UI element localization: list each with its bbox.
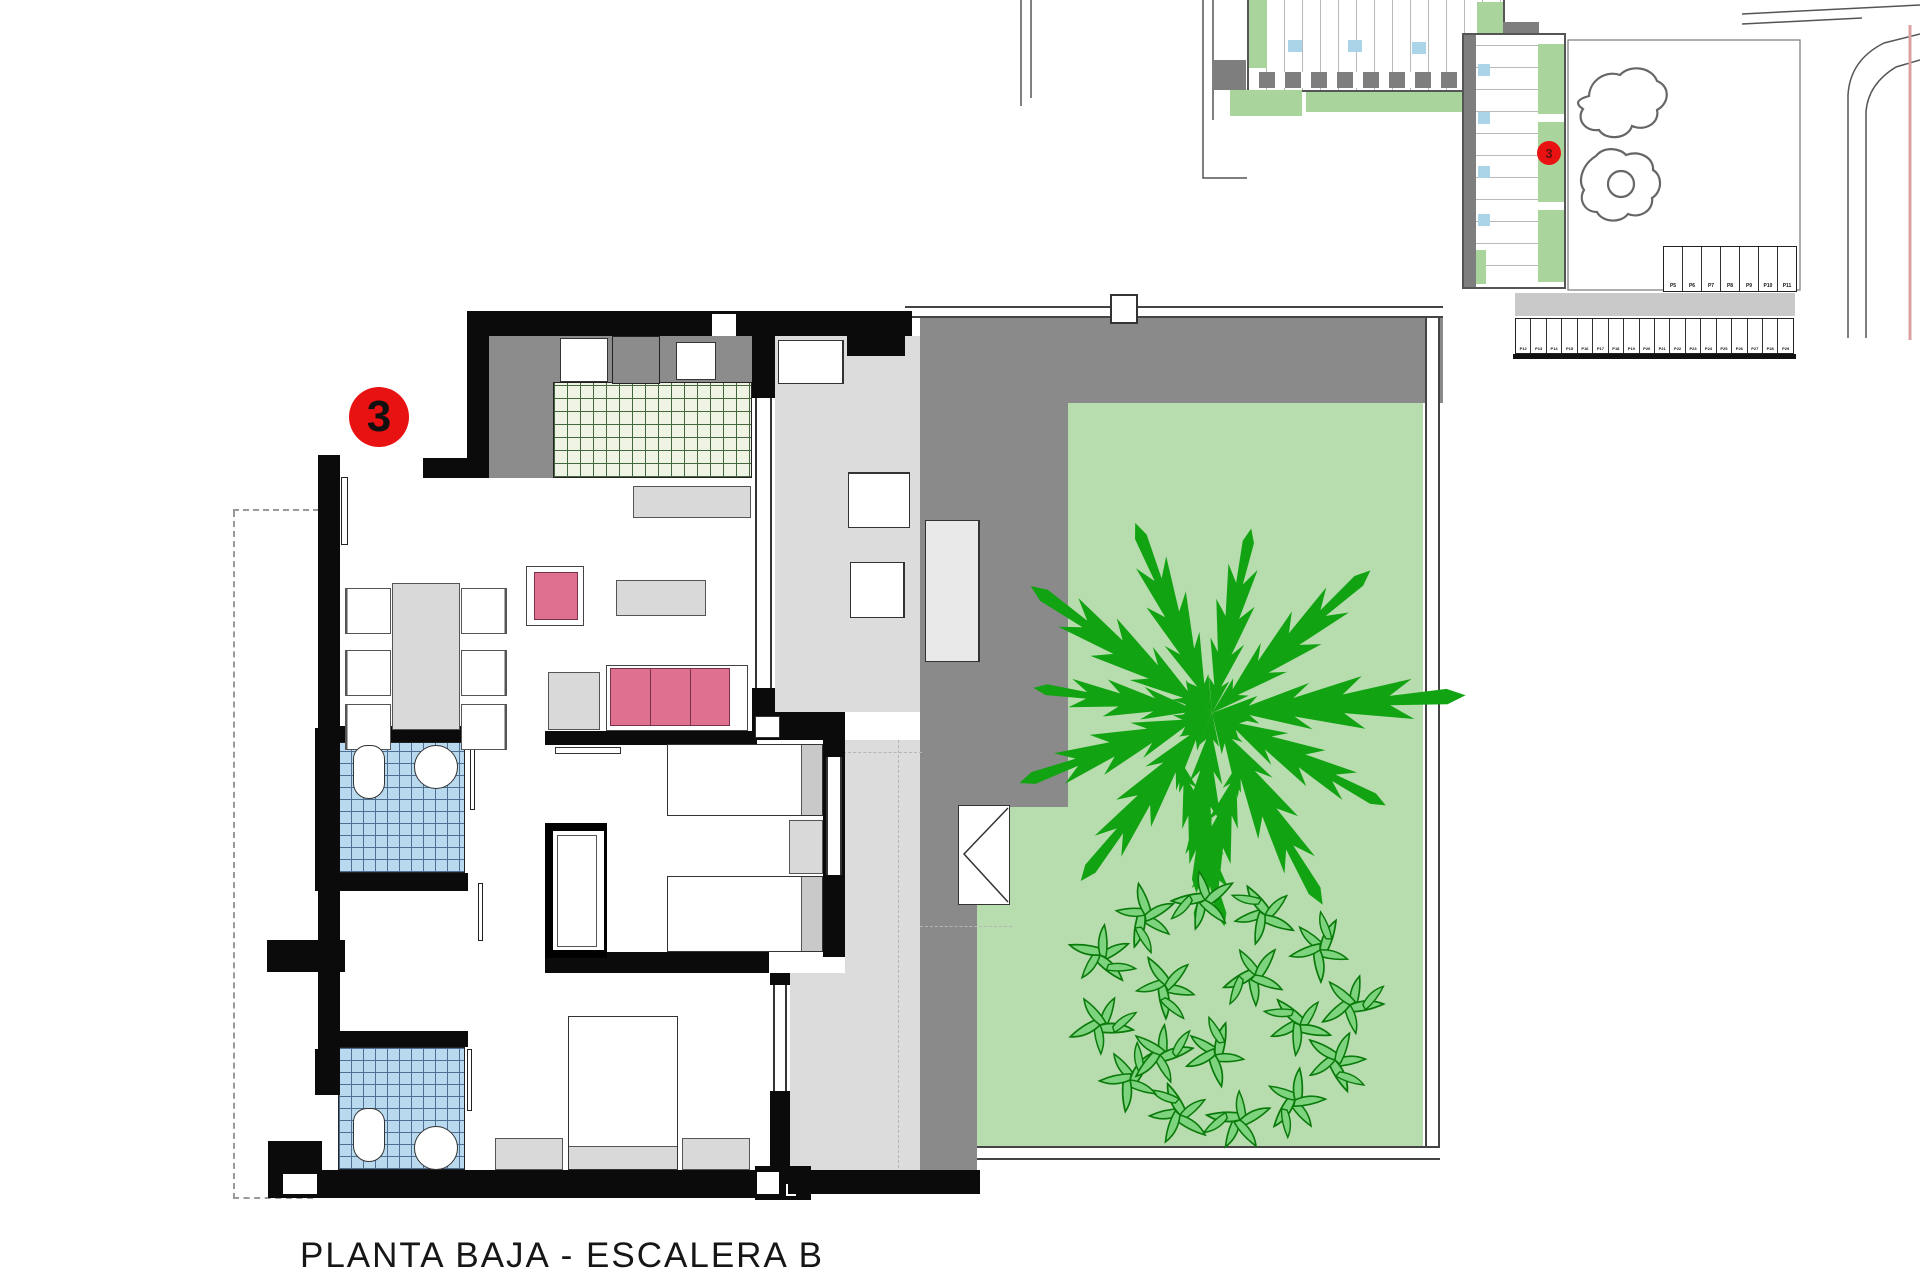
- bed: [568, 1016, 678, 1170]
- terrace-cabinet: [850, 562, 905, 618]
- site-road: [1515, 293, 1795, 316]
- kitchen-counter: [633, 486, 751, 518]
- terrace-cabinet: [778, 340, 844, 384]
- wall: [300, 1170, 765, 1198]
- dining-table: [392, 583, 460, 730]
- parking-stall-label: P7: [1702, 247, 1721, 291]
- wall: [770, 973, 790, 985]
- dining-chair: [461, 588, 507, 634]
- washbasin: [414, 1126, 458, 1170]
- wall: [338, 1031, 468, 1047]
- porch-unit: [612, 336, 660, 384]
- site-green: [1230, 90, 1302, 116]
- wall: [318, 972, 340, 1049]
- site-green: [1249, 0, 1267, 68]
- parking-row-lower: P12P13P14P15P16P17P18P19P20P21P22P23P24P…: [1515, 318, 1794, 354]
- parking-stall-label: P22: [1670, 319, 1685, 353]
- parking-stall-label: P13: [1531, 319, 1546, 353]
- nightstand: [495, 1138, 563, 1170]
- wall: [338, 873, 468, 891]
- plot-boundary-dashed: [233, 511, 235, 1199]
- bed: [667, 876, 823, 952]
- site-pool-dot: [1348, 40, 1362, 52]
- fence-right: [1425, 318, 1440, 1160]
- parking-stall-label: P11: [1778, 247, 1796, 291]
- porch-cabinet: [560, 338, 608, 382]
- parking-stall-label: P18: [1609, 319, 1624, 353]
- parking-stall-label: P25: [1717, 319, 1732, 353]
- nightstand: [789, 820, 823, 874]
- porch-cabinet: [676, 342, 716, 380]
- window: [826, 757, 842, 875]
- dining-chair: [345, 704, 391, 750]
- paving-band: [920, 318, 1443, 403]
- coffee-table: [616, 580, 706, 616]
- fence-bottom: [977, 1146, 1440, 1160]
- wall-notch: [712, 314, 736, 336]
- door-leaf: [467, 1049, 472, 1111]
- dining-chair: [461, 650, 507, 696]
- wall: [770, 1091, 790, 1170]
- toilet: [353, 745, 385, 799]
- washbasin: [414, 745, 458, 789]
- parking-stall-label: P14: [1547, 319, 1562, 353]
- fence-top: [905, 306, 1443, 318]
- parking-stall-label: P12: [1516, 319, 1531, 353]
- window: [773, 985, 787, 1091]
- wardrobe: [545, 823, 607, 958]
- wall-notch: [757, 1172, 779, 1194]
- parking-stall-label: P28: [1763, 319, 1778, 353]
- site-green: [1538, 210, 1564, 282]
- wall: [318, 891, 340, 942]
- parking-stall-label: P27: [1748, 319, 1763, 353]
- kitchen-floor-tiles: [553, 382, 752, 478]
- door-leaf: [478, 883, 483, 941]
- terrace: [790, 973, 920, 1170]
- site-roofline: [1464, 35, 1476, 287]
- garden-lawn: [1068, 403, 1423, 1150]
- wall: [847, 311, 905, 356]
- parking-stall-label: P17: [1593, 319, 1608, 353]
- wall: [545, 731, 757, 745]
- window: [755, 398, 772, 688]
- bedroom1-door: [755, 716, 780, 738]
- wall: [467, 311, 912, 336]
- site-pool-dot: [1478, 214, 1490, 226]
- site-pool-dot: [1412, 42, 1426, 54]
- wall: [752, 336, 775, 398]
- garden-gate-swing: [956, 804, 1016, 908]
- headboard: [801, 877, 822, 951]
- parking-stall-label: P19: [1624, 319, 1639, 353]
- wall: [318, 455, 340, 730]
- parking-stall-label: P9: [1740, 247, 1759, 291]
- site-green: [1306, 92, 1474, 112]
- site-unit-badge: 3: [1537, 141, 1561, 165]
- terrace-armchair: [848, 472, 910, 528]
- parking-stall-label: P24: [1701, 319, 1716, 353]
- nightstand: [682, 1138, 750, 1170]
- parking-stall-label: P26: [1732, 319, 1747, 353]
- wall-notch: [283, 1174, 317, 1194]
- terrace-bottom-wall: [788, 1170, 980, 1194]
- door-leaf: [341, 477, 348, 545]
- parking-stall-label: P21: [1655, 319, 1670, 353]
- parking-stall-label: P20: [1640, 319, 1655, 353]
- terrace: [845, 740, 920, 973]
- floorplan-sheet: 3 3: [0, 0, 1920, 1280]
- site-pool-dot: [1478, 64, 1490, 76]
- tv-shelf: [555, 747, 621, 754]
- terrace-guide-dashed: [898, 740, 899, 1168]
- dining-chair: [461, 704, 507, 750]
- site-pool-dot: [1478, 166, 1490, 178]
- parking-stall-label: P6: [1683, 247, 1702, 291]
- wall: [467, 311, 489, 478]
- plot-boundary-dashed: [233, 509, 319, 511]
- site-green: [1538, 44, 1564, 114]
- dining-chair: [345, 650, 391, 696]
- fence-post: [1110, 294, 1138, 324]
- wardrobe-interior: [557, 835, 597, 947]
- site-pool-dot: [1478, 112, 1490, 124]
- plan-title: PLANTA BAJA - ESCALERA B: [300, 1236, 824, 1276]
- wall: [315, 728, 340, 891]
- sofa-cushions: [610, 668, 730, 726]
- parking-stall-label: P15: [1562, 319, 1577, 353]
- wall: [315, 1049, 340, 1095]
- entry-porch: [489, 382, 553, 478]
- site-structure: [1212, 60, 1246, 90]
- bed-foot: [569, 1146, 677, 1169]
- parking-stall-label: P8: [1721, 247, 1740, 291]
- side-table: [548, 672, 600, 730]
- planter-bench: [925, 520, 980, 662]
- parking-stall-label: P29: [1778, 319, 1792, 353]
- headboard: [801, 745, 822, 815]
- parking-stall-label: P5: [1664, 247, 1683, 291]
- sofa: [606, 665, 748, 731]
- parking-stall-label: P10: [1759, 247, 1778, 291]
- bed: [667, 744, 823, 816]
- paving-band: [977, 403, 1068, 807]
- armchair: [534, 572, 578, 620]
- wall: [423, 458, 489, 478]
- toilet: [353, 1108, 385, 1162]
- dining-chair: [345, 588, 391, 634]
- parking-stall-label: P23: [1686, 319, 1701, 353]
- terrace-guide-dashed: [920, 926, 1012, 927]
- door-leaf: [470, 744, 475, 810]
- wall: [267, 940, 345, 972]
- parking-stall-label: P16: [1578, 319, 1593, 353]
- parking-edge: [1513, 354, 1796, 359]
- site-pool-dot: [1288, 40, 1302, 52]
- parking-row-upper: P5P6P7P8P9P10P11: [1663, 246, 1797, 292]
- unit-number-badge: 3: [349, 387, 409, 447]
